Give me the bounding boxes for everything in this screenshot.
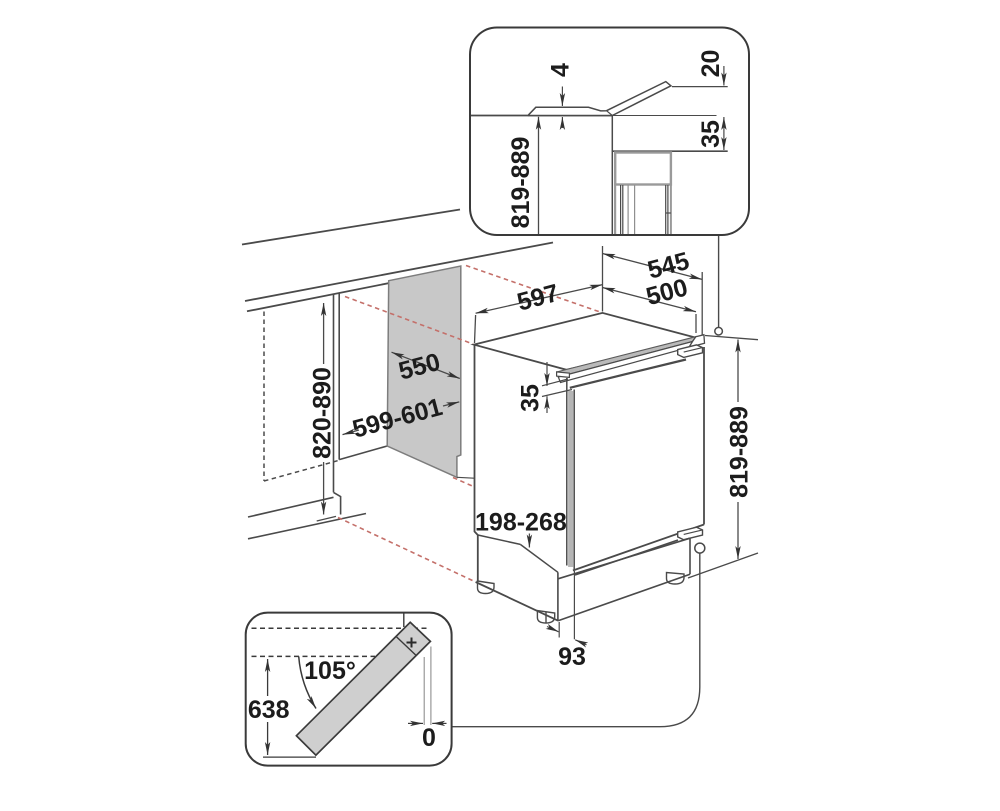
svg-text:819-889: 819-889 — [507, 137, 535, 229]
svg-text:35: 35 — [697, 120, 725, 148]
svg-text:35: 35 — [517, 384, 545, 412]
svg-text:93: 93 — [558, 643, 586, 671]
svg-text:819-889: 819-889 — [726, 406, 754, 498]
svg-text:0: 0 — [422, 724, 436, 752]
svg-text:198-268: 198-268 — [475, 509, 567, 537]
svg-text:20: 20 — [697, 50, 725, 78]
svg-text:4: 4 — [547, 63, 575, 77]
svg-text:105°: 105° — [304, 657, 356, 685]
svg-text:638: 638 — [248, 696, 290, 724]
svg-text:820-890: 820-890 — [309, 367, 337, 459]
